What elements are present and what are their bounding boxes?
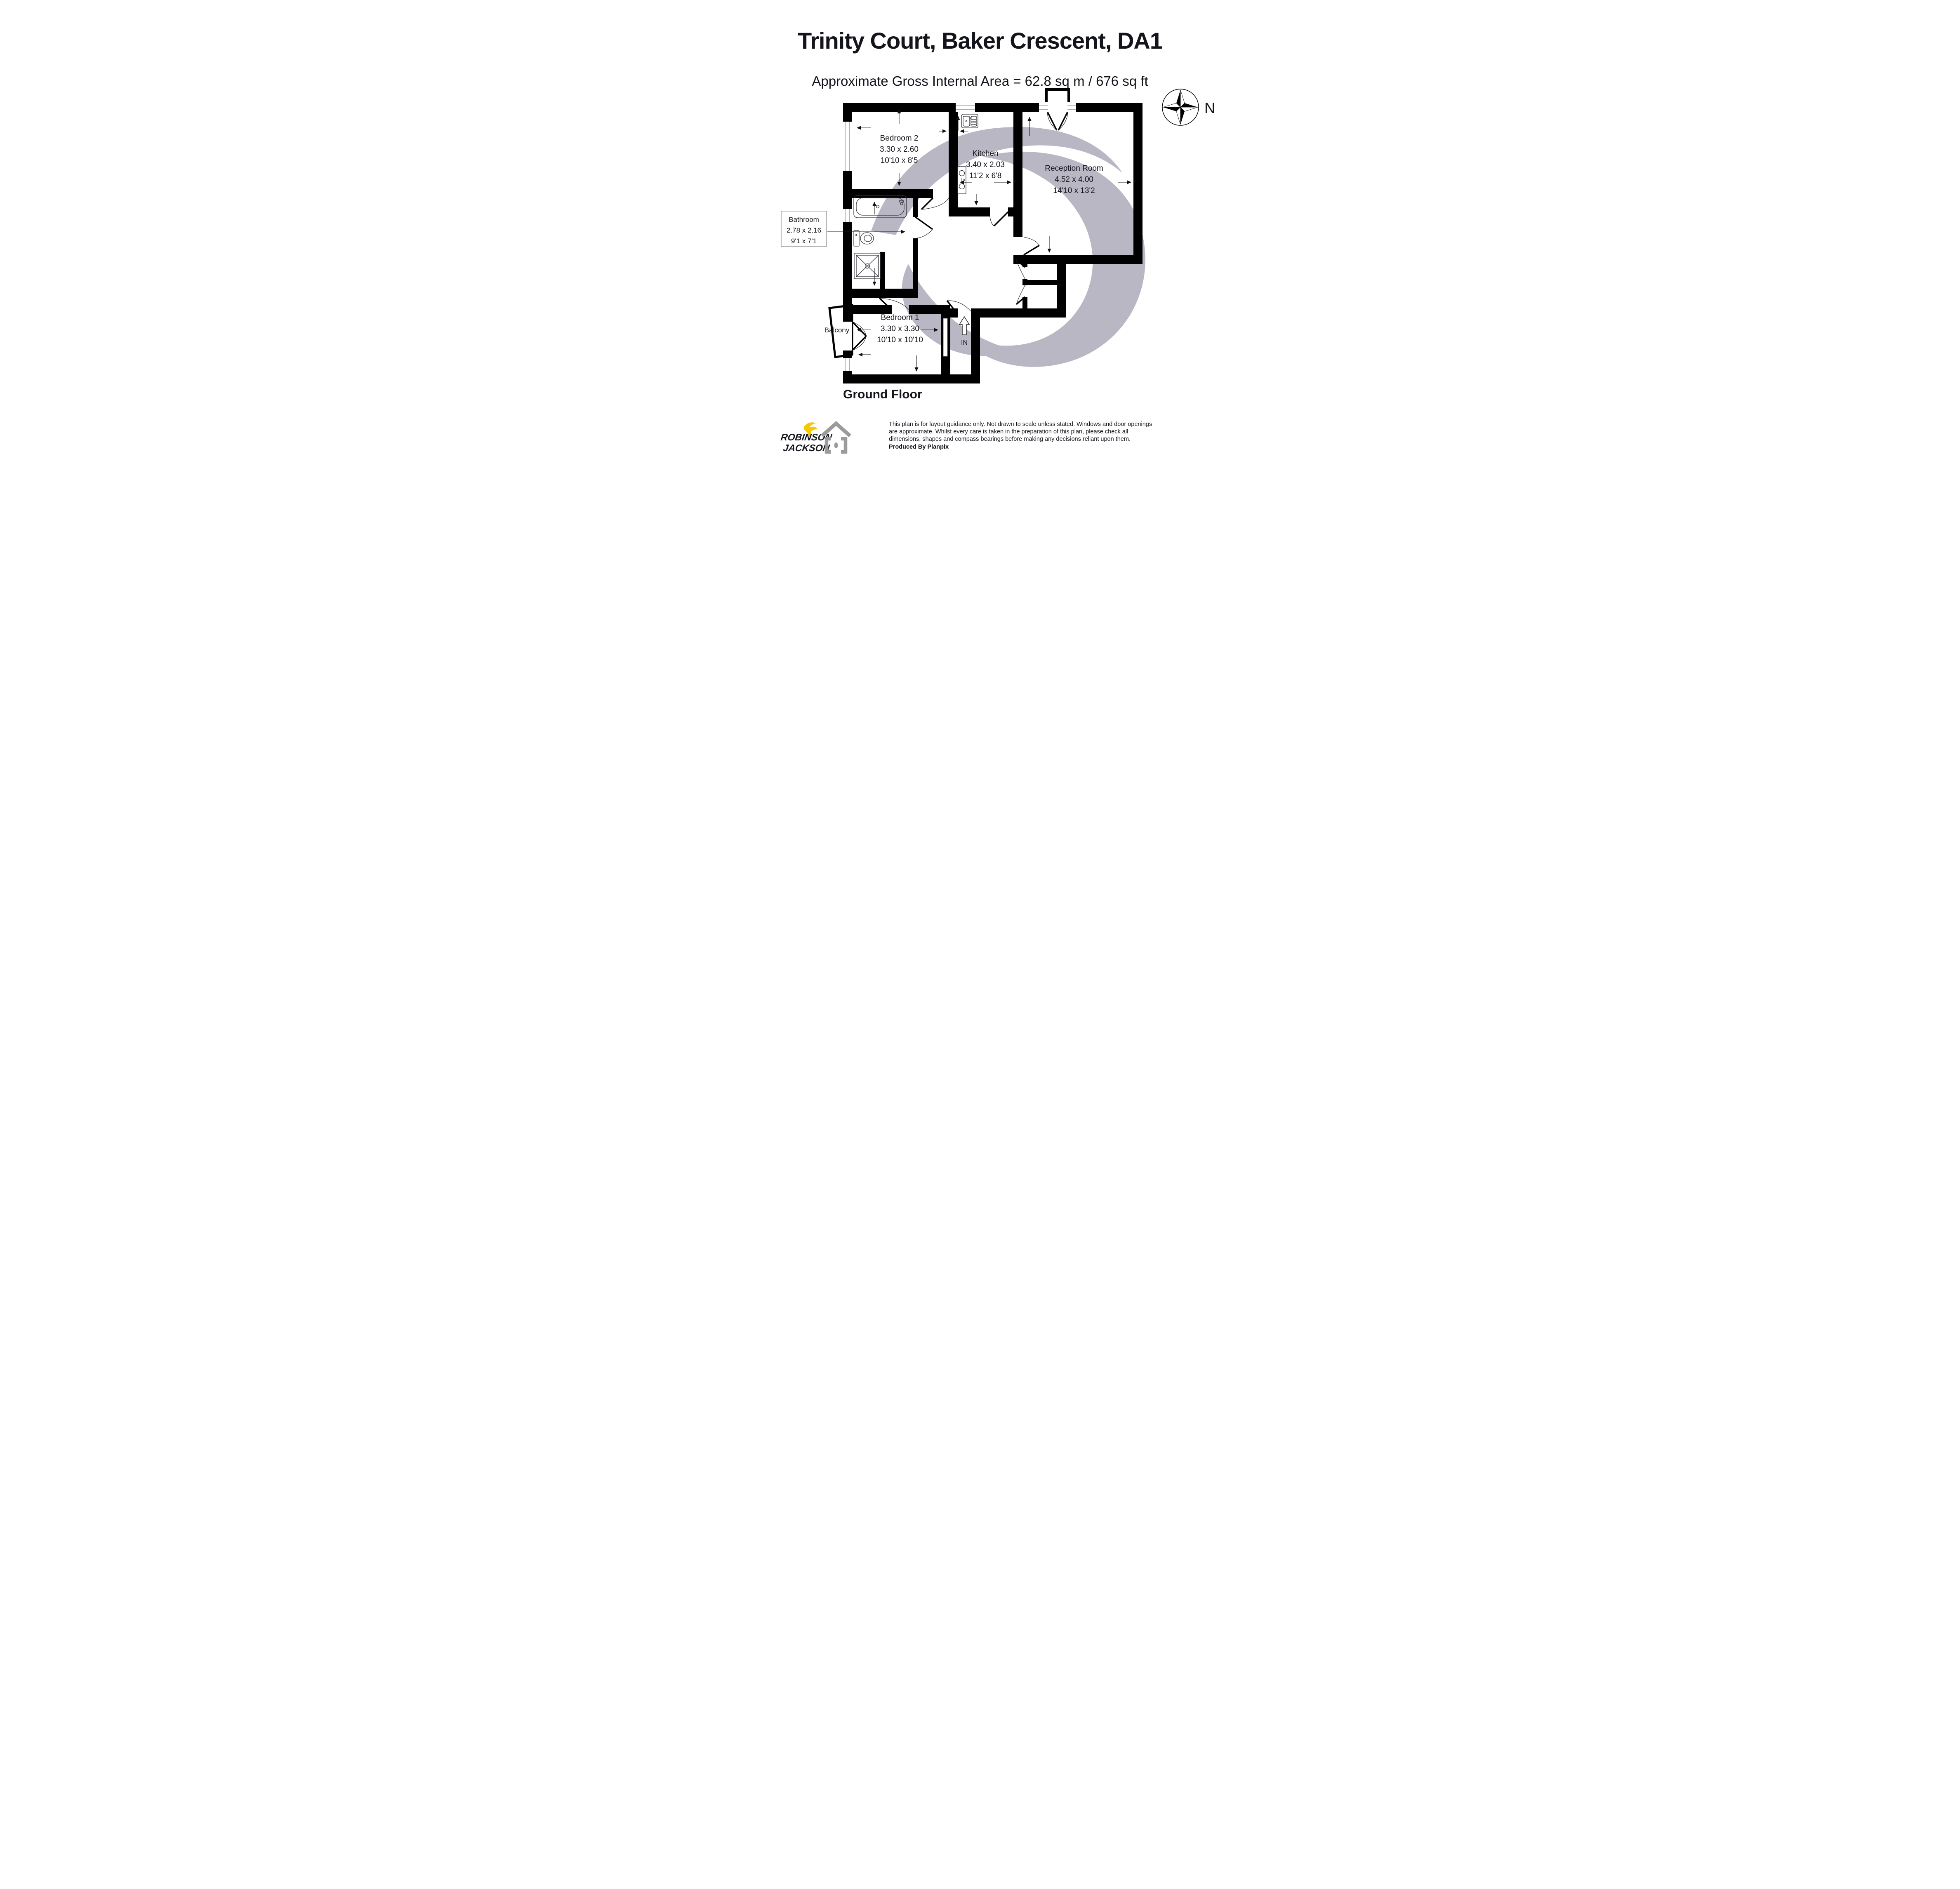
compass-icon: N <box>1162 89 1215 125</box>
kitchen-window <box>956 103 975 112</box>
produced-by-label: Produced By Planpix <box>889 444 949 450</box>
bedroom2-label: Bedroom 2 <box>880 134 919 143</box>
entry-porch <box>1046 89 1069 102</box>
reception-label: Reception Room <box>1045 164 1103 173</box>
kitchen-imperial: 11'2 x 6'8 <box>969 172 1002 180</box>
reception-window-left <box>1039 103 1048 112</box>
kitchen-label: Kitchen <box>972 149 998 158</box>
bedroom1-imperial: 10'10 x 10'10 <box>877 336 923 344</box>
kitchen-sink <box>961 114 978 128</box>
compass-north-label: N <box>1204 99 1215 116</box>
footer: ROBINSON JACKSON This plan is for layout… <box>780 421 1152 453</box>
reception-metric: 4.52 x 4.00 <box>1055 175 1093 184</box>
disclaimer: This plan is for layout guidance only. N… <box>889 421 1152 450</box>
bedroom1-sliding-door <box>943 318 947 356</box>
disclaimer-line1: This plan is for layout guidance only. N… <box>889 421 1152 428</box>
kitchen-door <box>990 212 1008 226</box>
bathroom-door <box>915 217 933 238</box>
bedroom1-metric: 3.30 x 3.30 <box>881 325 919 333</box>
page-title: Trinity Court, Baker Crescent, DA1 <box>798 28 1162 54</box>
reception-door <box>1024 237 1039 255</box>
disclaimer-line2: are approximate. Whilst every care is ta… <box>889 428 1128 435</box>
balcony-french-doors <box>852 322 866 351</box>
floorplan-canvas: Trinity Court, Baker Crescent, DA1 Appro… <box>735 0 1225 472</box>
bedroom1-window <box>843 358 852 371</box>
floorplan-page: Trinity Court, Baker Crescent, DA1 Appro… <box>735 0 1225 472</box>
page-subtitle: Approximate Gross Internal Area = 62.8 s… <box>812 73 1148 89</box>
entrance-label: IN <box>961 339 968 346</box>
reception-imperial: 14'10 x 13'2 <box>1053 186 1095 195</box>
bathroom-imperial: 9'1 x 7'1 <box>791 237 817 245</box>
planpix-house-icon <box>822 423 850 452</box>
bedroom1-label: Bedroom 1 <box>881 313 919 322</box>
toilet <box>854 231 874 246</box>
kitchen-hob <box>958 167 966 194</box>
bathroom-metric: 2.78 x 2.16 <box>787 226 821 234</box>
bathroom-label: Bathroom <box>789 216 819 223</box>
disclaimer-line3: dimensions, shapes and compass bearings … <box>889 436 1131 442</box>
shower-tray <box>854 253 881 279</box>
bathroom-window <box>843 209 852 222</box>
bedroom2-window <box>843 122 852 171</box>
porch-double-door <box>1047 112 1068 130</box>
floor-label: Ground Floor <box>843 388 922 401</box>
reception-window-right <box>1067 103 1076 112</box>
bedroom2-imperial: 10'10 x 8'5 <box>881 156 918 165</box>
balcony-label: Balcony <box>825 326 850 334</box>
bedroom2-metric: 3.30 x 2.60 <box>880 145 919 154</box>
kitchen-metric: 3.40 x 2.03 <box>966 160 1005 169</box>
bedroom2-door <box>921 198 949 209</box>
logo-line2: JACKSON <box>782 442 831 453</box>
